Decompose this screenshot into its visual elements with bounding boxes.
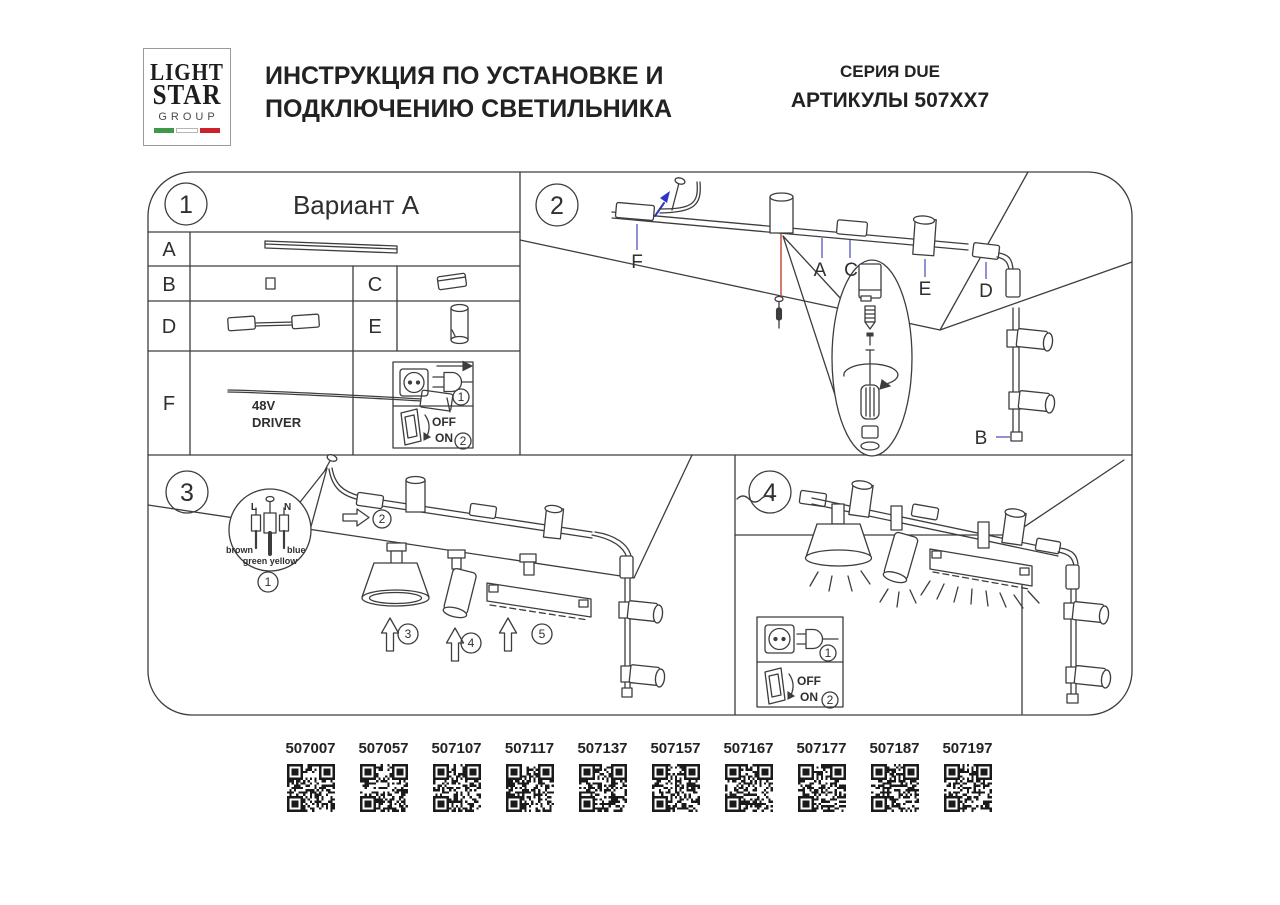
- terminal-block: [280, 515, 289, 531]
- mount-cylinder: [770, 197, 793, 233]
- qr-item: 507137: [574, 740, 631, 812]
- room-lines: [148, 455, 692, 578]
- variant-title: Вариант А: [293, 190, 420, 220]
- qr-code: [506, 764, 554, 812]
- qr-label: 507007: [282, 740, 339, 757]
- driver-label: DRIVER: [252, 415, 302, 430]
- track-bar-part: [265, 241, 397, 253]
- row-label-e: E: [368, 316, 381, 338]
- connector-c: [836, 220, 867, 237]
- connector: [469, 503, 496, 519]
- panel-3-wiring: 3 L N brown blue green yellow 1: [148, 453, 692, 697]
- qr-code: [798, 764, 846, 812]
- qr-label: 507137: [574, 740, 631, 757]
- qr-label: 507117: [501, 740, 558, 757]
- cylinder-spot: [1009, 390, 1055, 413]
- flex-connector-part: [228, 314, 320, 331]
- up-arrow-icon: [382, 618, 399, 651]
- qr-item: 507057: [355, 740, 412, 812]
- wall-rail: [1007, 308, 1055, 441]
- switch-on-label: ON: [800, 690, 818, 704]
- light-rays: [880, 589, 916, 607]
- terminal-screw: [266, 497, 274, 502]
- label-c: C: [844, 260, 858, 281]
- step5-arrow: 5: [500, 618, 553, 651]
- wire-blue-label: blue: [287, 545, 306, 555]
- step2-arrow: 2: [343, 509, 391, 528]
- end-cap-part: [266, 278, 275, 289]
- feed-cylinder: [1066, 565, 1079, 589]
- switch-step-number: 2: [460, 434, 467, 448]
- power-legend-box: 1 OFF ON 2: [757, 617, 843, 708]
- qr-code: [579, 764, 627, 812]
- cylinder-lamp-lit: [880, 506, 919, 607]
- light-rays: [810, 571, 870, 591]
- connector: [911, 504, 939, 520]
- blue-arrow-icon: [660, 191, 670, 203]
- switch-off-label: OFF: [432, 415, 456, 429]
- label-a: A: [814, 260, 827, 281]
- qr-item: 507187: [866, 740, 923, 812]
- qr-item: 507197: [939, 740, 996, 812]
- plug-step-number: 1: [825, 646, 832, 660]
- step5-number: 5: [539, 627, 546, 641]
- terminal-block: [252, 515, 261, 531]
- step3-number: 3: [405, 627, 412, 641]
- qr-code: [287, 764, 335, 812]
- right-arrow-icon: [343, 509, 369, 526]
- step4-arrow: 4: [447, 628, 482, 661]
- connector-f: [615, 202, 654, 220]
- wall-rail: [1058, 548, 1111, 703]
- panel1-number: 1: [179, 191, 193, 219]
- bracket-part: [859, 264, 881, 301]
- label-f: F: [631, 252, 643, 273]
- cylinder-spot: [619, 601, 663, 624]
- light-rays: [921, 581, 1039, 608]
- ceiling-screw-icon: [325, 453, 338, 470]
- qr-item: 507007: [282, 740, 339, 812]
- connector-part: [437, 273, 467, 290]
- qr-item: 507117: [501, 740, 558, 812]
- cone-lamp: [362, 543, 429, 606]
- qr-item: 507107: [428, 740, 485, 812]
- cylinder-lamp-part: [451, 305, 468, 344]
- wire-greenyellow-label: green yellow: [243, 556, 299, 566]
- qr-code: [360, 764, 408, 812]
- end-cap: [622, 688, 632, 697]
- step4-number: 4: [468, 636, 475, 650]
- switch-off-label: OFF: [797, 674, 821, 688]
- qr-code: [725, 764, 773, 812]
- terminal-block: [264, 513, 276, 533]
- switch-icon: [401, 409, 430, 445]
- panel3-number: 3: [180, 479, 194, 507]
- cylinder-spot: [621, 665, 665, 688]
- part-labels: F A C E D B: [631, 224, 1010, 449]
- end-cap: [1011, 432, 1022, 441]
- row-label-b: B: [162, 274, 175, 296]
- label-b: B: [975, 428, 988, 449]
- plug-step-number: 1: [458, 390, 465, 404]
- room-lines: [520, 172, 1132, 330]
- panel2-number: 2: [550, 192, 564, 220]
- panel4-number: 4: [763, 479, 777, 507]
- ceiling-track: [356, 477, 592, 539]
- qr-label: 507197: [939, 740, 996, 757]
- plug-icon: [433, 362, 472, 392]
- qr-item: 507167: [720, 740, 777, 812]
- up-arrow-icon: [500, 618, 517, 651]
- qr-label: 507167: [720, 740, 777, 757]
- feed-cylinder: [620, 556, 633, 578]
- panel-4-finished: 4: [735, 460, 1124, 714]
- wire-l-label: L: [251, 502, 257, 513]
- connector: [356, 492, 384, 508]
- cylinder-spot: [1007, 328, 1053, 351]
- row-label-c: C: [368, 274, 382, 296]
- cylinder-spot: [1066, 665, 1111, 688]
- mount-cylinder: [406, 480, 425, 512]
- cylinder-lamp: [442, 550, 477, 620]
- qr-item: 507177: [793, 740, 850, 812]
- switch-step-number: 2: [827, 693, 834, 707]
- wall-rail: [592, 532, 665, 697]
- panel-2-mounting: 2: [520, 172, 1132, 456]
- screw-below-icon: [775, 297, 783, 329]
- switch-on-label: ON: [435, 431, 453, 445]
- qr-label: 507107: [428, 740, 485, 757]
- step3-arrow: 3: [382, 618, 419, 651]
- panel-1-parts-table: 1 Вариант А A B C D E F: [148, 183, 520, 455]
- qr-label: 507187: [866, 740, 923, 757]
- label-e: E: [919, 279, 932, 300]
- driver-voltage: 48V: [252, 398, 275, 413]
- socket-icon: [765, 625, 794, 653]
- label-d: D: [979, 281, 993, 302]
- row-label-d: D: [162, 316, 176, 338]
- row-label-a: A: [162, 239, 176, 261]
- row-label-f: F: [163, 393, 175, 415]
- step2-number: 2: [379, 512, 386, 526]
- magnifier-detail: [832, 260, 912, 456]
- ceiling-screw-icon: [655, 177, 686, 216]
- qr-label: 507157: [647, 740, 704, 757]
- qr-code: [433, 764, 481, 812]
- qr-code: [944, 764, 992, 812]
- corner-connector-d: [972, 242, 1000, 259]
- cone-lamp-lit: [806, 504, 872, 591]
- qr-code: [652, 764, 700, 812]
- qr-label: 507177: [793, 740, 850, 757]
- wire-n-label: N: [284, 502, 291, 513]
- qr-item: 507157: [647, 740, 704, 812]
- end-cap: [1067, 694, 1078, 703]
- qr-strip: 5070075070575071075071175071375071575071…: [282, 740, 996, 812]
- wire-brown-label: brown: [226, 545, 253, 555]
- qr-code: [871, 764, 919, 812]
- switch-icon: [765, 668, 794, 704]
- qr-label: 507057: [355, 740, 412, 757]
- feed-cylinder: [1006, 269, 1020, 297]
- step1-number: 1: [265, 575, 272, 589]
